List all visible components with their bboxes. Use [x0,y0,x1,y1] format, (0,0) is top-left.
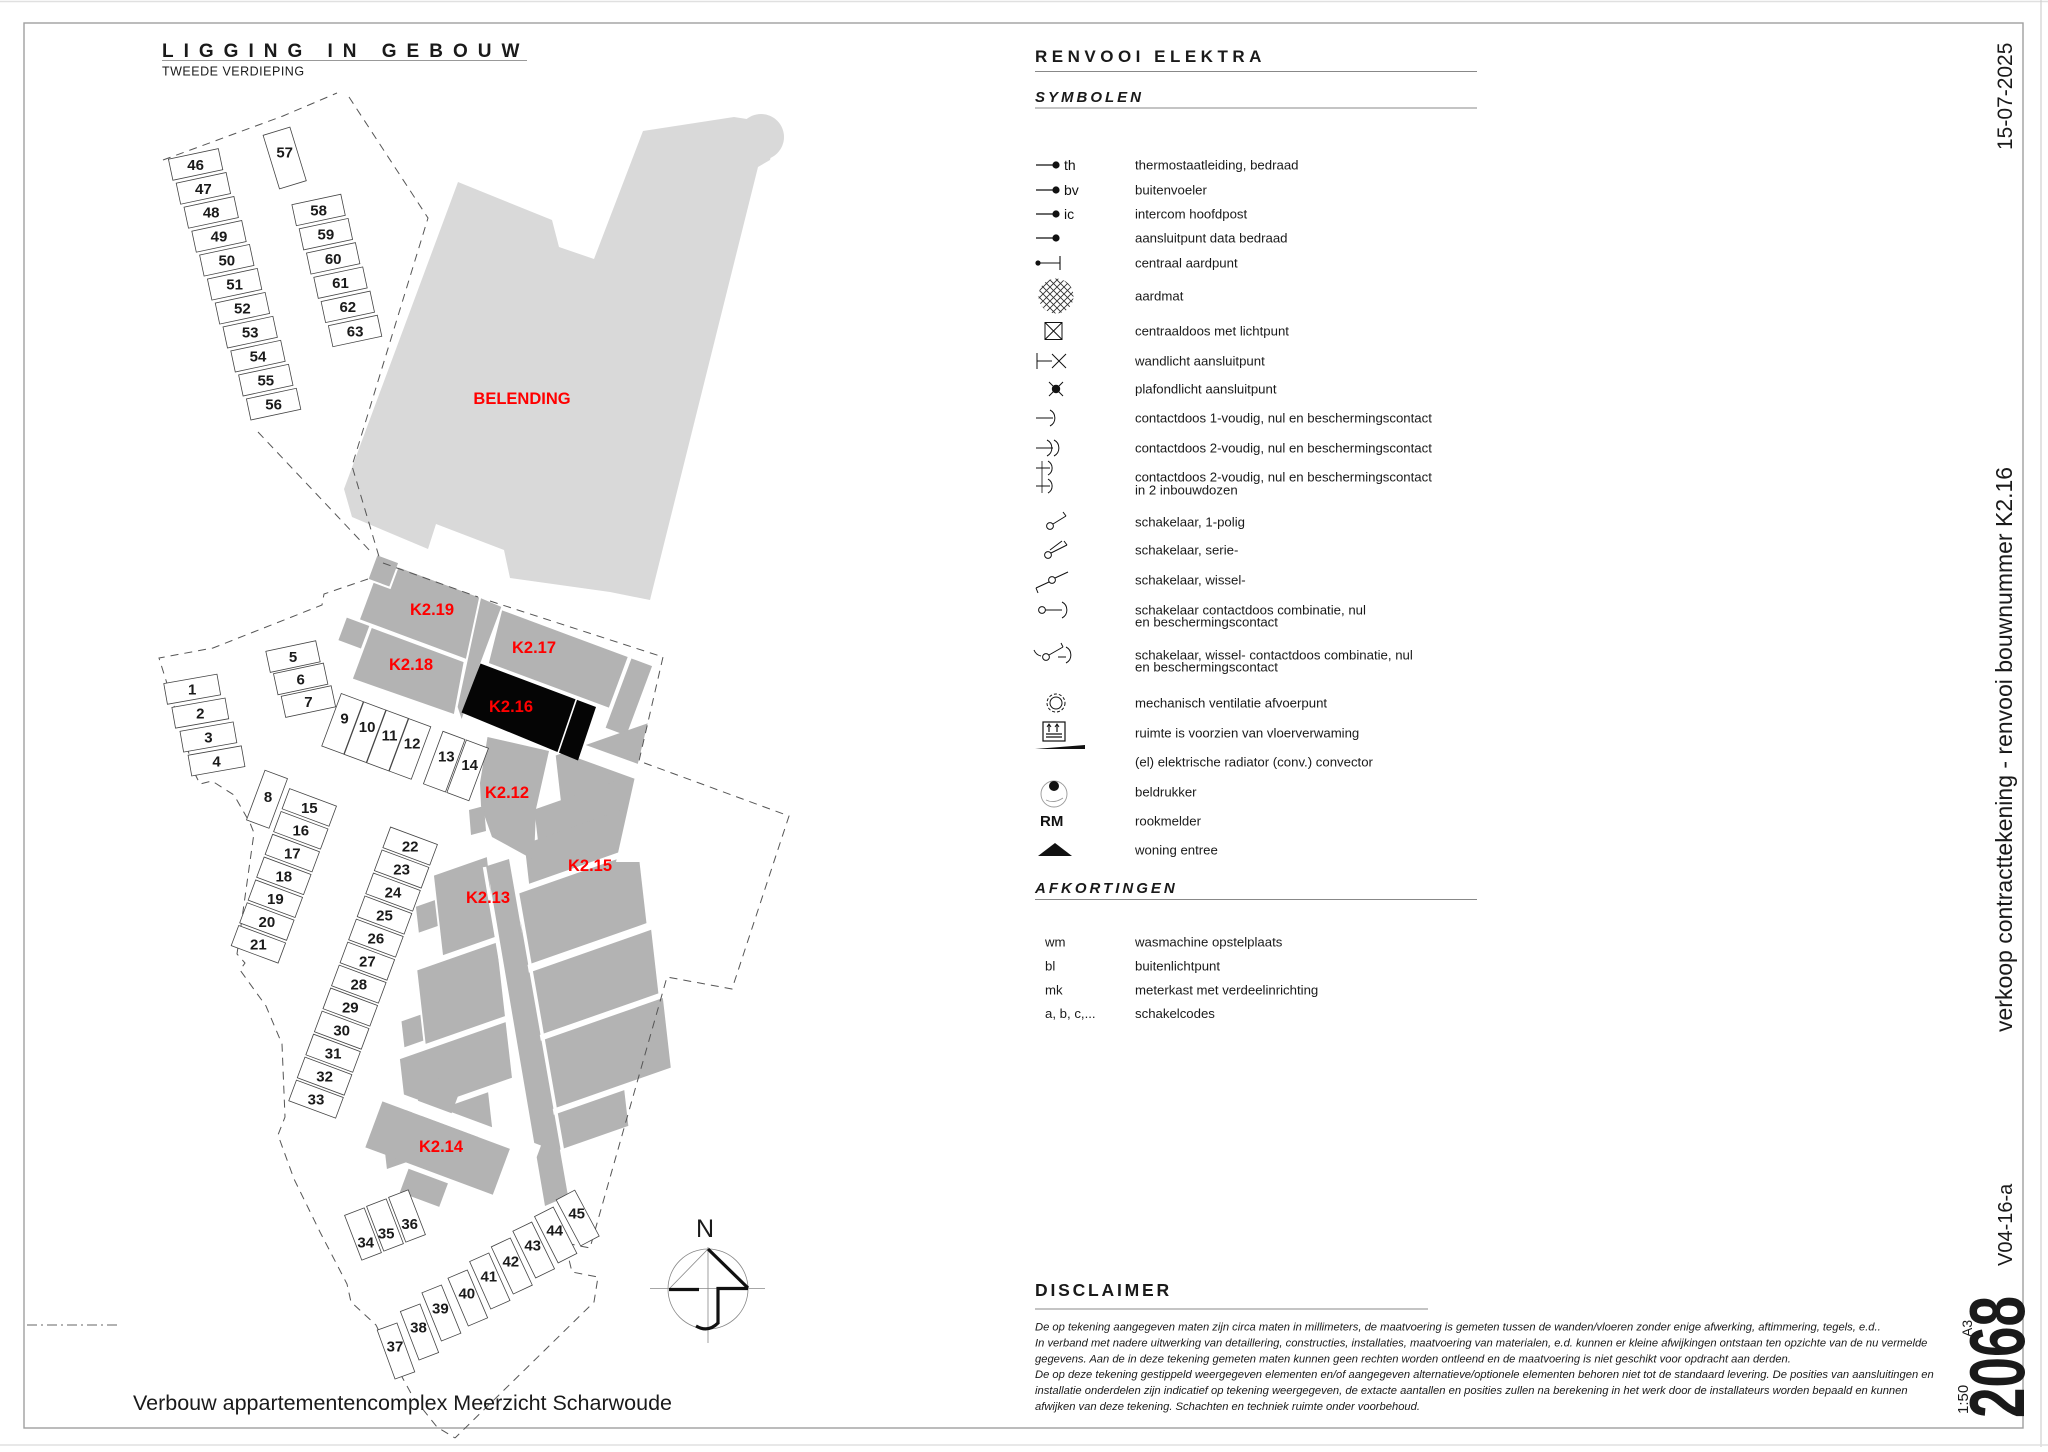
svg-text:schakelcodes: schakelcodes [1135,1006,1215,1021]
svg-text:58: 58 [310,202,327,219]
svg-text:25: 25 [376,908,393,925]
svg-text:48: 48 [203,205,220,222]
svg-text:K2.16: K2.16 [489,698,533,716]
svg-text:39: 39 [432,1300,449,1317]
svg-text:47: 47 [195,181,212,198]
svg-text:54: 54 [250,349,267,366]
svg-text:43: 43 [524,1237,541,1254]
svg-text:51: 51 [226,277,243,294]
svg-text:40: 40 [458,1285,475,1302]
svg-text:contactdoos 1-voudig, nul en b: contactdoos 1-voudig, nul en bescherming… [1135,411,1432,426]
svg-text:34: 34 [357,1234,374,1251]
svg-text:11: 11 [382,727,398,744]
svg-text:55: 55 [257,373,274,390]
svg-text:26: 26 [368,931,385,948]
svg-text:21: 21 [250,937,267,954]
svg-text:In verband met nadere uitwerki: In verband met nadere uitwerking van det… [1035,1337,1927,1349]
svg-text:15-07-2025: 15-07-2025 [1994,43,2017,150]
svg-text:a, b, c,...: a, b, c,... [1045,1006,1096,1021]
svg-text:buitenvoeler: buitenvoeler [1135,183,1207,198]
svg-text:19: 19 [267,891,284,908]
svg-text:LIGGING IN GEBOUW: LIGGING IN GEBOUW [162,41,529,62]
svg-text:62: 62 [339,299,356,316]
svg-text:DISCLAIMER: DISCLAIMER [1035,1280,1172,1300]
svg-text:6: 6 [297,671,305,688]
svg-text:33: 33 [308,1092,325,1109]
svg-text:44: 44 [546,1222,563,1239]
svg-text:K2.17: K2.17 [512,639,556,657]
svg-text:1:50: 1:50 [1955,1385,1972,1414]
svg-text:wasmachine opstelplaats: wasmachine opstelplaats [1134,935,1283,950]
svg-text:rookmelder: rookmelder [1135,814,1202,829]
svg-text:th: th [1064,157,1076,173]
svg-text:22: 22 [402,839,419,856]
svg-text:Verbouw appartementencomplex M: Verbouw appartementencomplex Meerzicht S… [133,1391,672,1415]
svg-text:mechanisch ventilatie afvoerpu: mechanisch ventilatie afvoerpunt [1135,696,1327,711]
svg-text:29: 29 [342,1000,359,1017]
svg-text:30: 30 [333,1023,350,1040]
svg-text:plafondlicht aansluitpunt: plafondlicht aansluitpunt [1135,382,1277,397]
svg-text:en beschermingscontact: en beschermingscontact [1135,660,1278,675]
svg-text:8: 8 [264,789,272,806]
svg-text:bl: bl [1045,959,1055,974]
svg-text:14: 14 [461,757,478,774]
svg-text:28: 28 [350,977,367,994]
svg-text:42: 42 [502,1253,519,1270]
svg-text:57: 57 [276,144,293,161]
svg-text:ic: ic [1064,206,1074,222]
svg-text:59: 59 [318,227,335,244]
svg-text:13: 13 [438,748,455,765]
svg-text:installatie onderdelen zijn in: installatie onderdelen zijn indicatief o… [1035,1385,1908,1397]
svg-text:1: 1 [188,682,196,699]
svg-text:23: 23 [393,862,410,879]
svg-text:bv: bv [1064,182,1079,198]
svg-text:in 2 inbouwdozen: in 2 inbouwdozen [1135,483,1238,498]
svg-text:en beschermingscontact: en beschermingscontact [1135,615,1278,630]
svg-text:woning entree: woning entree [1134,843,1218,858]
svg-text:centraaldoos met lichtpunt: centraaldoos met lichtpunt [1135,324,1289,339]
svg-text:wandlicht aansluitpunt: wandlicht aansluitpunt [1134,354,1265,369]
svg-text:N: N [696,1215,714,1243]
svg-text:18: 18 [275,868,292,885]
svg-text:TWEEDE VERDIEPING: TWEEDE VERDIEPING [162,65,305,79]
svg-text:contactdoos 2-voudig, nul en b: contactdoos 2-voudig, nul en bescherming… [1135,441,1432,456]
svg-text:K2.15: K2.15 [568,857,612,875]
svg-text:61: 61 [332,275,349,292]
svg-text:A3: A3 [1959,1320,1975,1337]
svg-text:20: 20 [259,914,276,931]
svg-text:24: 24 [385,885,402,902]
svg-text:aardmat: aardmat [1135,289,1184,304]
svg-text:16: 16 [292,823,309,840]
svg-text:BELENDING: BELENDING [473,390,570,408]
svg-text:RM: RM [1040,813,1063,830]
svg-text:beldrukker: beldrukker [1135,785,1197,800]
svg-text:buitenlichtpunt: buitenlichtpunt [1135,959,1220,974]
svg-text:35: 35 [378,1225,395,1242]
svg-text:41: 41 [480,1268,497,1285]
svg-text:50: 50 [218,253,235,270]
svg-text:37: 37 [387,1338,404,1355]
svg-text:afwijken van deze tekening. Sc: afwijken van deze tekening. Schachten en… [1035,1401,1420,1413]
svg-text:RENVOOI ELEKTRA: RENVOOI ELEKTRA [1035,47,1266,66]
svg-text:49: 49 [211,229,228,246]
svg-text:De op tekening aangegeven mate: De op tekening aangegeven maten zijn cir… [1035,1322,1881,1334]
svg-text:aansluitpunt data bedraad: aansluitpunt data bedraad [1135,231,1288,246]
svg-text:52: 52 [234,301,251,318]
svg-text:wm: wm [1044,935,1066,950]
svg-text:schakelaar, 1-polig: schakelaar, 1-polig [1135,515,1245,530]
svg-text:3: 3 [204,729,212,746]
svg-text:schakelaar, wissel-: schakelaar, wissel- [1135,573,1246,588]
svg-text:verkoop contracttekening - ren: verkoop contracttekening - renvooi bouwn… [1991,467,2017,1032]
svg-text:V04-16-a: V04-16-a [1995,1183,2017,1266]
svg-text:32: 32 [316,1069,333,1086]
svg-text:63: 63 [347,323,364,340]
svg-text:9: 9 [340,711,348,728]
svg-text:meterkast met verdeelinrichtin: meterkast met verdeelinrichting [1135,983,1318,998]
svg-text:K2.19: K2.19 [410,601,454,619]
svg-text:schakelaar, serie-: schakelaar, serie- [1135,543,1238,558]
svg-text:31: 31 [325,1046,342,1063]
svg-text:56: 56 [265,397,282,414]
svg-text:intercom hoofdpost: intercom hoofdpost [1135,207,1247,222]
svg-text:centraal aardpunt: centraal aardpunt [1135,256,1238,271]
svg-text:AFKORTINGEN: AFKORTINGEN [1034,880,1178,897]
svg-text:De op deze tekening gestippeld: De op deze tekening gestippeld weergegev… [1035,1369,1934,1381]
svg-text:15: 15 [301,800,318,817]
svg-text:45: 45 [568,1205,585,1222]
svg-text:27: 27 [359,954,376,971]
svg-text:2: 2 [196,706,204,723]
svg-text:38: 38 [410,1319,427,1336]
svg-text:K2.12: K2.12 [485,784,529,802]
svg-text:12: 12 [404,736,421,753]
svg-text:gegevens. Aan de in deze teken: gegevens. Aan de in deze tekening gemete… [1035,1353,1791,1365]
svg-text:36: 36 [401,1216,418,1233]
svg-text:60: 60 [325,251,342,268]
svg-text:10: 10 [359,719,376,736]
svg-text:53: 53 [242,325,259,342]
svg-text:SYMBOLEN: SYMBOLEN [1035,89,1144,106]
svg-text:thermostaatleiding, bedraad: thermostaatleiding, bedraad [1135,158,1299,173]
svg-text:mk: mk [1045,983,1063,998]
svg-text:ruimte is voorzien van vloerve: ruimte is voorzien van vloerverwaming [1135,726,1359,741]
svg-text:K2.18: K2.18 [389,656,433,674]
svg-text:5: 5 [289,649,297,666]
svg-text:K2.14: K2.14 [419,1138,464,1156]
svg-text:4: 4 [212,753,221,770]
svg-text:(el) elektrische radiator (con: (el) elektrische radiator (conv.) convec… [1135,755,1374,770]
svg-text:17: 17 [284,846,301,863]
svg-text:46: 46 [187,157,204,174]
svg-text:K2.13: K2.13 [466,889,510,907]
svg-text:7: 7 [304,694,312,711]
